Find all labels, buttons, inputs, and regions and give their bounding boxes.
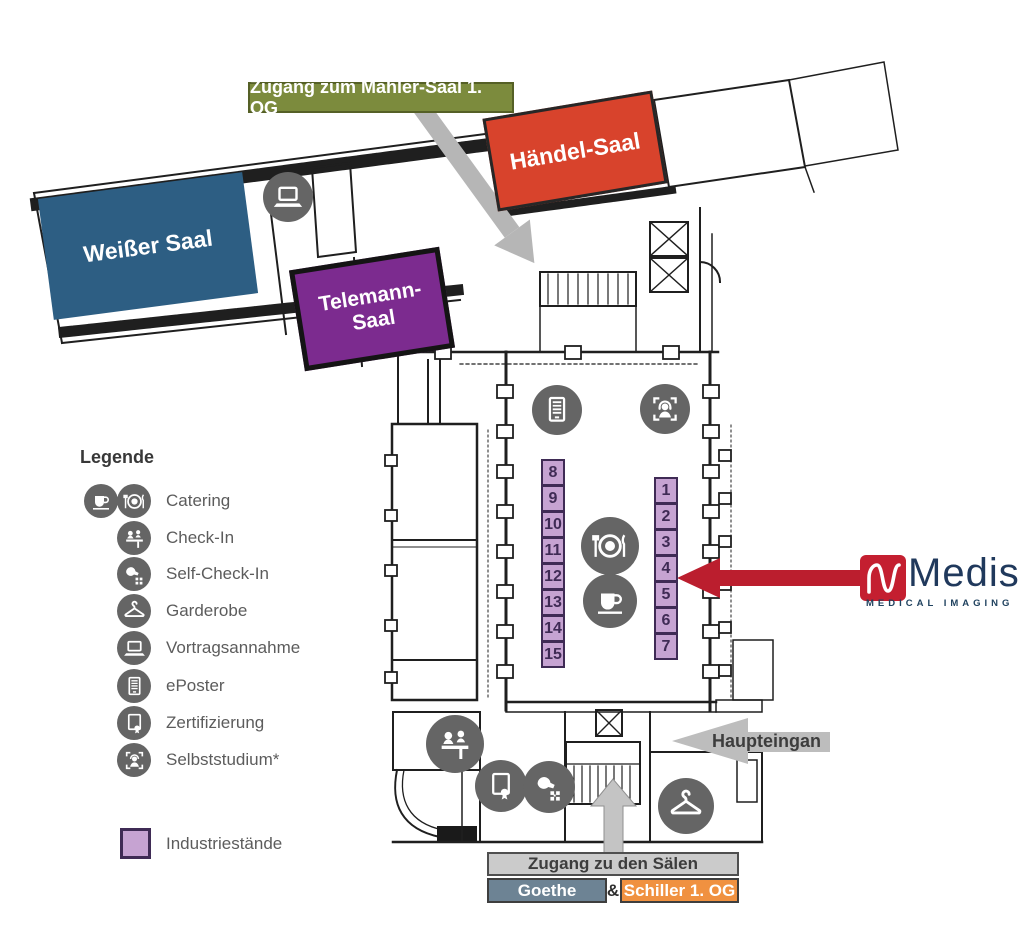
legend-item-garderobe: Garderobe <box>166 594 247 628</box>
medis-logo-tagline: MEDICAL IMAGING <box>866 598 1013 609</box>
legend-item-selfcheckin: Self-Check-In <box>166 557 269 591</box>
zugang-saele-label: Zugang zu den Sälen <box>528 854 698 874</box>
legend-coffee-cup-icon <box>84 484 118 518</box>
room-weisser-saal-label: Weißer Saal <box>82 224 214 268</box>
legend-item-selbststudium: Selbststudium* <box>166 743 279 777</box>
stand-15: 15 <box>541 641 565 668</box>
legend-item-vortragsannahme: Vortragsannahme <box>166 631 300 665</box>
legend-item-industriestaende: Industriestände <box>166 827 282 861</box>
legend-item-checkin: Check-In <box>166 521 234 555</box>
stand-12: 12 <box>541 563 565 590</box>
laptop-icon <box>271 180 305 214</box>
legend-item-eposter: ePoster <box>166 669 225 703</box>
legend-selbststudium-icon <box>117 743 151 777</box>
legend-item-zertifizierung: Zertifizierung <box>166 706 264 740</box>
goethe-bar: Goethe <box>487 878 607 903</box>
garderobe-map-icon <box>658 778 714 834</box>
coat-hanger-icon <box>667 787 705 825</box>
mahler-access-banner-label: Zugang zum Mahler-Saal 1. OG <box>250 77 512 119</box>
checkin-map-icon <box>426 715 484 773</box>
people-at-desk-icon <box>435 724 475 764</box>
coffee-cup-icon <box>592 583 628 619</box>
selfcheckin-map-icon <box>523 761 575 813</box>
medis-logo-mark <box>860 555 906 601</box>
zugang-saele-bar: Zugang zu den Sälen <box>487 852 739 876</box>
stand-7: 7 <box>654 633 678 660</box>
stand-11: 11 <box>541 537 565 564</box>
medis-wave-icon <box>860 555 906 601</box>
legend-zertifizierung-icon <box>117 706 151 740</box>
legend-plate-icon <box>117 484 151 518</box>
stand-10: 10 <box>541 511 565 538</box>
schiller-bar: Schiller 1. OG <box>620 878 739 903</box>
eposter-map-icon <box>532 385 582 435</box>
stand-8: 8 <box>541 459 565 486</box>
legend-garderobe-icon <box>117 594 151 628</box>
legend-vortragsannahme-icon <box>117 631 151 665</box>
stand-3: 3 <box>654 529 678 556</box>
document-lines-icon <box>540 393 574 427</box>
stand-4: 4 <box>654 555 678 582</box>
stand-1: 1 <box>654 477 678 504</box>
selbststudium-map-icon <box>640 384 690 434</box>
catering-coffee-map-icon <box>583 574 637 628</box>
schiller-label: Schiller 1. OG <box>624 881 736 901</box>
haupteingang-label: Haupteingan <box>712 730 830 752</box>
room-haendel-saal-label: Händel-Saal <box>508 127 642 175</box>
industriestaende-swatch <box>120 828 151 859</box>
medis-logo-name: Medis <box>908 550 1020 596</box>
legend-selfcheckin-icon <box>117 557 151 591</box>
zertifizierung-map-icon <box>475 760 527 812</box>
stand-14: 14 <box>541 615 565 642</box>
legend-title: Legende <box>80 447 154 468</box>
legend-item-catering: Catering <box>166 484 230 518</box>
legend-checkin-icon <box>117 521 151 555</box>
plate-cutlery-icon <box>590 526 630 566</box>
stand-5: 5 <box>654 581 678 608</box>
catering-plate-map-icon <box>581 517 639 575</box>
hand-qr-code-icon <box>532 770 566 804</box>
stand-2: 2 <box>654 503 678 530</box>
stand-6: 6 <box>654 607 678 634</box>
room-telemann-saal-label: Telemann-Saal <box>298 274 446 344</box>
legend-eposter-icon <box>117 669 151 703</box>
certificate-seal-icon <box>484 769 518 803</box>
stand-9: 9 <box>541 485 565 512</box>
person-headphones-icon <box>648 392 682 426</box>
mahler-access-banner: Zugang zum Mahler-Saal 1. OG <box>248 82 514 113</box>
goethe-label: Goethe <box>518 881 577 901</box>
ampersand-label: & <box>606 878 620 903</box>
venue-floor-plan: Weißer Saal Telemann-Saal Händel-Saal Zu… <box>0 0 1024 951</box>
vortragsannahme-map-icon <box>263 172 313 222</box>
stand-13: 13 <box>541 589 565 616</box>
